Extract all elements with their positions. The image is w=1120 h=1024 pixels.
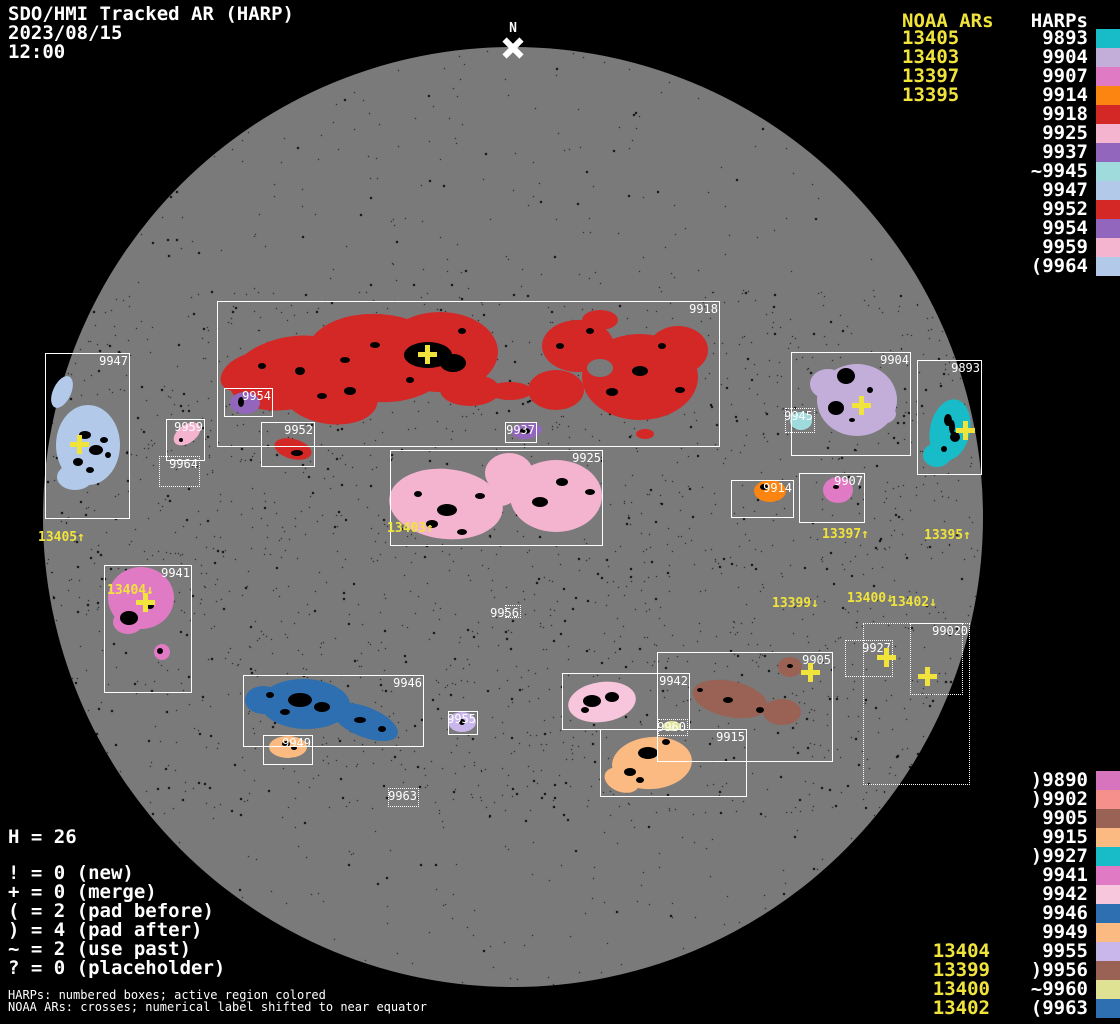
harp-box-label-9963: 9963	[388, 789, 417, 803]
harp-color-swatch	[1096, 200, 1120, 219]
harp-box-9937: 9937	[505, 422, 537, 443]
harp-box-label-9945: 9945	[784, 409, 813, 423]
harp-box-label-9902: 9902	[932, 624, 961, 638]
harp-box-9963: 9963	[388, 788, 419, 807]
footer-notes: HARPs: numbered boxes; active region col…	[8, 989, 427, 1013]
harp-color-swatch	[1096, 143, 1120, 162]
harp-color-swatch	[1096, 771, 1120, 790]
harp-color-swatch	[1096, 219, 1120, 238]
harp-color-swatch	[1096, 790, 1120, 809]
harp-color-swatch	[1096, 257, 1120, 276]
harp-box-9904: 9904	[791, 352, 911, 456]
noaa-shifted-label: 13403↑	[387, 522, 434, 536]
harp-box-label-9947: 9947	[99, 354, 128, 368]
noaa-cross-icon	[918, 667, 937, 686]
noaa-cross-icon	[877, 648, 896, 667]
harp-box-label-9955: 9955	[447, 712, 476, 726]
noaa-shifted-label: 13402↓	[890, 596, 937, 610]
harp-color-swatch	[1096, 105, 1120, 124]
symbol-legend: ! = 0 (new) + = 0 (merge) ( = 2 (pad bef…	[8, 864, 225, 978]
harp-color-swatch	[1096, 999, 1120, 1018]
harp-color-swatch	[1096, 904, 1120, 923]
harp-color-swatch	[1096, 828, 1120, 847]
harp-color-swatch	[1096, 86, 1120, 105]
harp-box-label-9925: 9925	[572, 451, 601, 465]
noaa-shifted-label: 13405↑	[38, 531, 85, 545]
harp-box-label-9914: 9914	[763, 481, 792, 495]
noaa-ar-number: 13402	[933, 999, 990, 1018]
harp-box-label-9952: 9952	[284, 423, 313, 437]
harp-color-swatch	[1096, 847, 1120, 866]
solar-harp-visualization: 9918994799599964995499529937992599419904…	[0, 0, 1120, 1024]
north-x-marker	[502, 37, 524, 59]
harp-box-label-9941: 9941	[161, 566, 190, 580]
harp-box-9907: 9907	[799, 473, 865, 523]
harp-box-label-9904: 9904	[880, 353, 909, 367]
noaa-cross-icon	[801, 663, 820, 682]
harp-box-label-9918: 9918	[689, 302, 718, 316]
harp-box-9949: 9949	[263, 735, 313, 765]
harp-color-swatch	[1096, 162, 1120, 181]
harp-box-9959: 9959	[166, 419, 205, 461]
harp-color-swatch	[1096, 866, 1120, 885]
noaa-cross-icon	[852, 396, 871, 415]
noaa-ar-number: 13395	[902, 86, 959, 105]
noaa-shifted-label: 13397↑	[822, 528, 869, 542]
harp-box-9956: 9956	[505, 605, 521, 618]
harp-color-swatch	[1096, 67, 1120, 86]
harp-color-swatch	[1096, 980, 1120, 999]
harp-box-label-9937: 9937	[506, 423, 535, 437]
harp-box-9914: 9914	[731, 480, 794, 518]
harp-box-label-9964: 9964	[169, 457, 198, 471]
north-label: N	[500, 21, 526, 36]
harp-color-swatch	[1096, 942, 1120, 961]
noaa-shifted-label: 13404↓	[107, 584, 154, 598]
harp-color-swatch	[1096, 29, 1120, 48]
noaa-shifted-label: 13399↓	[772, 597, 819, 611]
harp-box-label-9946: 9946	[393, 676, 422, 690]
harp-box-9952: 9952	[261, 422, 315, 467]
harp-color-swatch	[1096, 48, 1120, 67]
harp-color-swatch	[1096, 181, 1120, 200]
legend-row: (9964	[896, 257, 1120, 276]
noaa-shifted-label: 13395↑	[924, 529, 971, 543]
harp-box-label-9949: 9949	[282, 736, 311, 750]
footer-line2: NOAA ARs: crosses; numerical label shift…	[8, 1000, 427, 1014]
harp-box-label-9907: 9907	[834, 474, 863, 488]
harp-color-swatch	[1096, 238, 1120, 257]
noaa-cross-icon	[418, 345, 437, 364]
noaa-cross-icon	[956, 421, 975, 440]
harp-number: (9963	[1031, 999, 1088, 1018]
harp-number: (9964	[1031, 257, 1088, 276]
harp-color-swatch	[1096, 124, 1120, 143]
harp-box-9964: 9964	[159, 456, 200, 487]
time-line: 12:00	[8, 41, 65, 63]
harp-box-label-9956: 9956	[490, 606, 519, 620]
harp-box-9915: 9915	[600, 729, 747, 797]
harp-count: H = 26	[8, 828, 77, 847]
harp-box-label-9959: 9959	[174, 420, 203, 434]
harp-box-9893: 9893	[917, 360, 982, 475]
noaa-cross-icon	[70, 435, 89, 454]
harp-color-swatch	[1096, 885, 1120, 904]
harp-box-9955: 9955	[448, 711, 478, 735]
harp-color-swatch	[1096, 961, 1120, 980]
harp-box-label-9893: 9893	[951, 361, 980, 375]
harp-color-swatch	[1096, 923, 1120, 942]
legend-row: 13402(9963	[896, 999, 1120, 1018]
harp-box-label-9915: 9915	[716, 730, 745, 744]
page-title: SDO/HMI Tracked AR (HARP) 2023/08/15 12:…	[8, 5, 294, 62]
harp-box-9954: 9954	[224, 388, 273, 417]
noaa-shifted-label: 13400↓	[847, 592, 894, 606]
harp-box-9945: 9945	[785, 408, 815, 433]
harp-box-label-9954: 9954	[242, 389, 271, 403]
harp-color-swatch	[1096, 809, 1120, 828]
